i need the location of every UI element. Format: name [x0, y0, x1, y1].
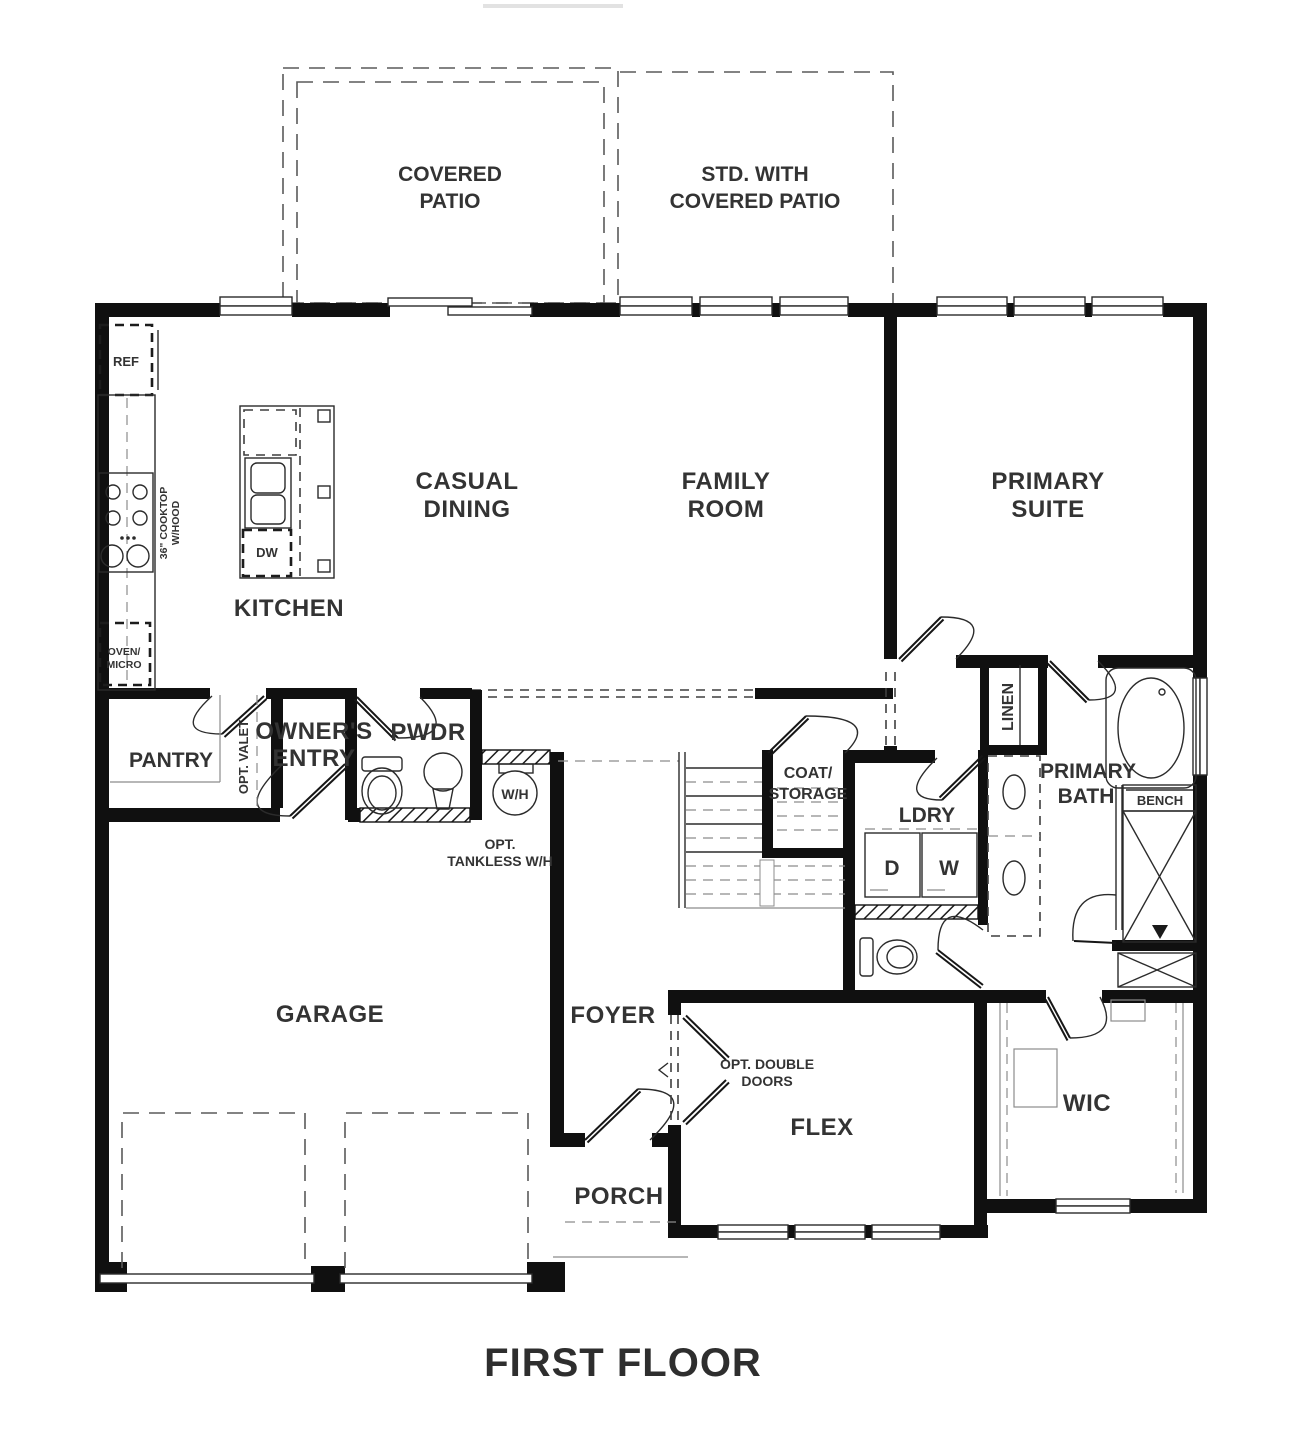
opt-double-doors-label-2: DOORS [741, 1073, 792, 1089]
flex-label: FLEX [790, 1114, 853, 1141]
window-suite-1 [937, 297, 1007, 315]
opt-double-doors-label-1: OPT. DOUBLE [720, 1056, 814, 1072]
coat-storage-label-2: STORAGE [769, 786, 848, 803]
family-room-label-2: ROOM [688, 496, 765, 523]
window-family-2 [700, 297, 772, 315]
owners-entry-label-2: ENTRY [273, 745, 356, 772]
window-bath [1193, 678, 1207, 775]
coat-storage-door [768, 716, 858, 756]
page-artifact-line [483, 4, 623, 8]
wic-dresser [1014, 1049, 1057, 1107]
std-patio-label-1: STD. WITH [701, 163, 808, 186]
window-flex-3 [872, 1225, 940, 1239]
stair-stringer [760, 860, 774, 906]
window-flex-2 [795, 1225, 865, 1239]
primary-suite-door [899, 617, 974, 662]
linen-cabinet-icon [1118, 953, 1196, 987]
kitchen-label: KITCHEN [234, 595, 344, 622]
bench-label: BENCH [1137, 793, 1183, 808]
kitchen-island [240, 406, 334, 578]
coat-storage-label-1: COAT/ [784, 765, 833, 782]
opt-valet-label: OPT. VALET [236, 720, 251, 794]
oven-micro-label-1: OVEN/ [108, 646, 141, 658]
interior-walls [95, 317, 1196, 1003]
window-wic [1056, 1199, 1130, 1213]
hatch-pwdr-south [360, 808, 470, 822]
floor-plan-page: COVERED PATIO STD. WITH COVERED PATIO CA… [0, 0, 1299, 1438]
family-room-label-1: FAMILY [682, 468, 771, 495]
window-suite-3 [1092, 297, 1163, 315]
window-flex-1 [718, 1225, 788, 1239]
opt-tankless-label-2: TANKLESS W/H [447, 853, 553, 869]
casual-dining-label-2: DINING [424, 496, 511, 523]
vanity-sink-1 [1003, 775, 1025, 809]
window-kitchen [220, 297, 292, 315]
window-family-3 [780, 297, 848, 315]
primary-bath-label-2: BATH [1058, 785, 1115, 808]
primary-suite-label-2: SUITE [1011, 496, 1084, 523]
water-closet-door [936, 916, 983, 988]
kitchen-fixtures [98, 325, 334, 690]
garage-details [122, 1113, 528, 1268]
covered-patio-label-2: PATIO [419, 190, 480, 213]
window-family-1 [620, 297, 692, 315]
shower-door [1073, 895, 1116, 943]
cooktop-label-1: 36" COOKTOP [158, 487, 170, 559]
porch-details [553, 1222, 688, 1257]
floor-plan-drawing: COVERED PATIO STD. WITH COVERED PATIO CA… [0, 0, 1299, 1438]
pwdr-label: PWDR [390, 719, 465, 746]
primary-suite-label-1: PRIMARY [991, 468, 1104, 495]
linen-label: LINEN [1000, 683, 1017, 731]
hatch-wh-top [482, 750, 550, 764]
oven-micro-label-2: MICRO [107, 659, 142, 671]
pantry-label: PANTRY [129, 749, 213, 772]
washer-label: W [939, 857, 959, 880]
vanity-sink-2 [1003, 861, 1025, 895]
foyer-label: FOYER [570, 1002, 655, 1029]
porch-label: PORCH [574, 1183, 663, 1210]
wh-label: W/H [501, 786, 528, 802]
pwdr-sink-icon [424, 753, 462, 809]
ref-label: REF [113, 354, 139, 369]
dryer-label: D [884, 857, 899, 880]
cooktop-label-2: W/HOOD [170, 500, 182, 545]
std-patio-label-2: COVERED PATIO [670, 190, 841, 213]
wic-shelf [1111, 1000, 1145, 1021]
sliding-patio-door [388, 298, 532, 315]
wic-door [1046, 997, 1107, 1041]
shower-icon [1123, 811, 1196, 942]
dw-label: DW [256, 545, 278, 560]
wic-label: WIC [1063, 1090, 1111, 1117]
casual-dining-label-1: CASUAL [416, 468, 519, 495]
pwdr-toilet-icon [362, 757, 402, 814]
wc-toilet-icon [860, 938, 917, 976]
exterior-walls [95, 303, 1207, 1292]
primary-bath-label-1: PRIMARY [1040, 760, 1136, 783]
bath-vanity [988, 756, 1040, 936]
owners-entry-label-1: OWNER'S [255, 718, 372, 745]
opt-tankless-label-1: OPT. [484, 836, 515, 852]
covered-patio-label-1: COVERED [398, 163, 502, 186]
garage-label: GARAGE [276, 1001, 384, 1028]
page-title: FIRST FLOOR [484, 1341, 762, 1385]
garage-door-track-2 [345, 1113, 528, 1268]
garage-door-track-1 [122, 1113, 305, 1268]
ldry-label: LDRY [899, 804, 955, 827]
std-patio-outline [620, 72, 893, 303]
window-suite-2 [1014, 297, 1085, 315]
flex-opt-double-doors [659, 1015, 729, 1125]
island-sink-icon [245, 458, 291, 528]
